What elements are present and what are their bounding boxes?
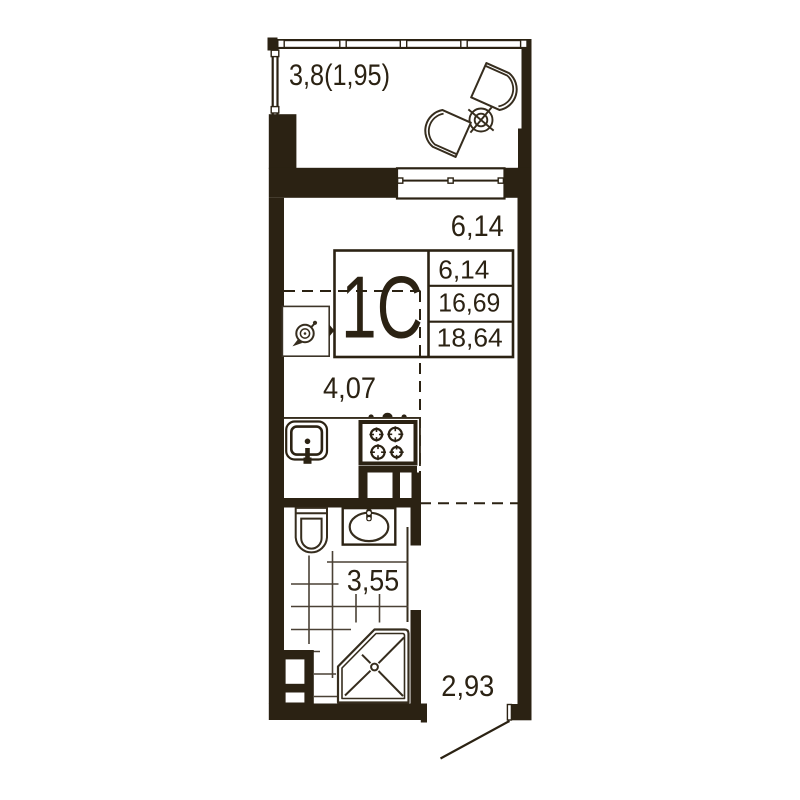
svg-text:6,14: 6,14 xyxy=(438,255,489,285)
svg-text:18,64: 18,64 xyxy=(437,323,503,353)
svg-text:2,93: 2,93 xyxy=(441,670,494,703)
svg-text:3,8(1,95): 3,8(1,95) xyxy=(289,59,390,92)
svg-text:1C: 1C xyxy=(341,258,423,357)
svg-text:3,55: 3,55 xyxy=(347,564,399,597)
svg-text:4,07: 4,07 xyxy=(323,372,376,405)
svg-text:6,14: 6,14 xyxy=(451,210,504,243)
svg-text:16,69: 16,69 xyxy=(438,287,500,317)
